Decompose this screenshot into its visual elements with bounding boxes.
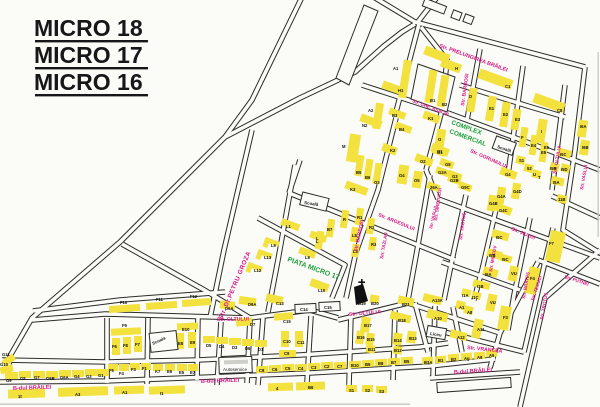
- svg-text:D1: D1: [258, 347, 264, 352]
- svg-text:A12: A12: [457, 335, 465, 340]
- svg-text:B3A: B3A: [424, 360, 432, 365]
- svg-text:F9: F9: [122, 323, 128, 328]
- svg-text:C13: C13: [276, 301, 284, 306]
- svg-text:Ag: Ag: [464, 356, 470, 361]
- svg-text:B3: B3: [392, 113, 398, 118]
- svg-text:B4: B4: [399, 127, 405, 132]
- svg-text:B17: B17: [364, 323, 372, 328]
- svg-text:R1: R1: [357, 215, 363, 220]
- svg-text:K2: K2: [390, 148, 396, 153]
- svg-text:B10: B10: [351, 363, 359, 368]
- svg-text:G9: G9: [6, 378, 12, 383]
- svg-text:C11: C11: [297, 340, 305, 345]
- svg-text:B1: B1: [438, 358, 444, 363]
- svg-text:C14: C14: [300, 307, 308, 312]
- svg-text:VU: VU: [511, 271, 517, 276]
- svg-text:F12: F12: [190, 294, 198, 299]
- svg-text:B12: B12: [394, 348, 402, 353]
- svg-text:A2: A2: [368, 108, 374, 113]
- svg-text:R: R: [343, 217, 346, 222]
- svg-text:B5: B5: [404, 359, 410, 364]
- svg-text:L8: L8: [305, 255, 311, 260]
- svg-text:I5B: I5B: [550, 166, 557, 171]
- svg-text:S1: S1: [519, 158, 525, 163]
- svg-text:L3: L3: [353, 249, 359, 254]
- svg-text:F8: F8: [123, 343, 129, 348]
- svg-text:G8: G8: [20, 376, 26, 381]
- svg-text:E5: E5: [179, 370, 185, 375]
- svg-text:R2: R2: [369, 225, 375, 230]
- svg-text:G9C: G9C: [461, 185, 470, 190]
- svg-text:G10: G10: [0, 362, 9, 367]
- svg-text:Autoservice: Autoservice: [223, 367, 247, 372]
- svg-text:I5D: I5D: [561, 167, 568, 172]
- svg-text:F1: F1: [142, 366, 148, 371]
- svg-text:B-dul BRĂILEI: B-dul BRĂILEI: [13, 384, 52, 392]
- svg-text:11B: 11B: [558, 197, 565, 202]
- svg-text:MICRO 16: MICRO 16: [34, 69, 143, 95]
- svg-text:A3: A3: [75, 392, 81, 397]
- svg-text:F7: F7: [549, 241, 555, 246]
- svg-text:I1B: I1B: [477, 284, 484, 289]
- svg-text:B20: B20: [371, 301, 379, 306]
- svg-text:G6B: G6B: [46, 376, 55, 381]
- svg-text:E4: E4: [531, 143, 537, 148]
- svg-text:B8: B8: [378, 361, 384, 366]
- svg-text:F4: F4: [530, 276, 536, 281]
- svg-text:D4: D4: [219, 344, 225, 349]
- svg-text:E6: E6: [167, 369, 173, 374]
- svg-text:G1: G1: [437, 150, 443, 155]
- svg-text:M: M: [342, 144, 346, 149]
- svg-text:B14: B14: [394, 338, 402, 343]
- svg-text:I5A: I5A: [553, 180, 560, 185]
- svg-text:B18: B18: [398, 318, 406, 323]
- svg-text:D6A: D6A: [225, 306, 233, 311]
- svg-text:S2: S2: [365, 388, 371, 393]
- svg-text:A9: A9: [477, 355, 483, 360]
- svg-text:A1: A1: [459, 305, 465, 310]
- svg-text:L13: L13: [264, 255, 272, 260]
- svg-text:G4B: G4B: [489, 201, 498, 206]
- svg-text:D5: D5: [206, 343, 212, 348]
- svg-text:E5: E5: [544, 145, 550, 150]
- svg-text:C1: C1: [505, 84, 511, 89]
- svg-text:C7: C7: [337, 364, 343, 369]
- svg-text:B9: B9: [365, 362, 371, 367]
- svg-text:B6: B6: [308, 385, 314, 390]
- svg-text:A5: A5: [489, 353, 495, 358]
- svg-text:I6A: I6A: [580, 124, 587, 129]
- svg-text:C3: C3: [311, 365, 317, 370]
- svg-text:E8: E8: [178, 341, 184, 346]
- svg-text:B2: B2: [442, 102, 448, 107]
- svg-text:I5C: I5C: [496, 235, 503, 240]
- svg-text:O2: O2: [420, 159, 426, 164]
- svg-text:Str. OLTULUI: Str. OLTULUI: [217, 316, 250, 323]
- svg-text:I1A: I1A: [462, 293, 469, 298]
- svg-text:G8: G8: [445, 162, 451, 167]
- svg-text:G6A: G6A: [60, 375, 69, 380]
- svg-text:I5C: I5C: [560, 152, 567, 157]
- svg-text:D9A: D9A: [248, 302, 256, 307]
- svg-text:G3A: G3A: [438, 170, 447, 175]
- svg-text:G11: G11: [2, 352, 10, 357]
- svg-text:D6: D6: [245, 346, 251, 351]
- svg-text:F: F: [521, 135, 524, 140]
- svg-text:G7: G7: [34, 375, 40, 380]
- svg-text:G4: G4: [74, 374, 80, 379]
- svg-text:L12: L12: [254, 268, 262, 273]
- svg-text:G1: G1: [98, 373, 104, 378]
- svg-text:F3: F3: [503, 315, 509, 320]
- svg-text:H: H: [455, 66, 458, 71]
- svg-text:R3: R3: [371, 242, 377, 247]
- svg-text:L10: L10: [318, 288, 326, 293]
- svg-text:I5C: I5C: [502, 257, 509, 262]
- svg-text:E9: E9: [190, 340, 196, 345]
- svg-text:F11: F11: [156, 297, 164, 302]
- svg-text:B21: B21: [402, 302, 410, 307]
- svg-text:I5A: I5A: [485, 272, 492, 277]
- svg-text:B13: B13: [409, 336, 417, 341]
- svg-text:G3: G3: [86, 374, 92, 379]
- svg-text:F5: F5: [109, 368, 115, 373]
- svg-text:MICRO 17: MICRO 17: [34, 42, 143, 68]
- svg-text:C9: C9: [284, 351, 290, 356]
- svg-text:C5: C5: [285, 366, 291, 371]
- svg-text:B19: B19: [358, 301, 366, 306]
- svg-text:G4D: G4D: [513, 189, 522, 194]
- svg-text:L: L: [316, 236, 319, 241]
- svg-text:O4: O4: [399, 173, 405, 178]
- svg-text:B15: B15: [367, 337, 375, 342]
- svg-text:MICRO 18: MICRO 18: [34, 15, 143, 41]
- svg-text:K3: K3: [350, 187, 356, 192]
- svg-text:S1: S1: [349, 388, 355, 393]
- svg-text:F7: F7: [135, 342, 141, 347]
- svg-text:D: D: [469, 94, 472, 99]
- svg-text:B7: B7: [327, 227, 333, 232]
- svg-text:D7: D7: [250, 322, 256, 327]
- svg-text:52: 52: [527, 166, 532, 171]
- svg-text:B16: B16: [357, 335, 365, 340]
- svg-text:A1: A1: [122, 390, 128, 395]
- svg-text:F6: F6: [112, 344, 118, 349]
- svg-text:A11: A11: [477, 327, 485, 332]
- svg-text:B6: B6: [365, 175, 371, 180]
- svg-text:B-dul BRĂILEI: B-dul BRĂILEI: [201, 377, 240, 385]
- svg-text:E7: E7: [190, 370, 196, 375]
- svg-text:1t: 1t: [18, 394, 22, 399]
- svg-text:H1: H1: [398, 88, 404, 93]
- svg-text:K1: K1: [428, 116, 434, 121]
- svg-text:26A: 26A: [430, 185, 438, 190]
- svg-text:C6: C6: [272, 367, 278, 372]
- svg-text:O3: O3: [374, 180, 380, 185]
- svg-text:C4: C4: [298, 366, 304, 371]
- svg-text:B11: B11: [368, 347, 376, 352]
- svg-text:A1: A1: [393, 66, 399, 71]
- svg-text:I1C: I1C: [472, 295, 479, 300]
- svg-text:A8: A8: [467, 310, 473, 315]
- svg-text:B5: B5: [356, 170, 362, 175]
- svg-text:C2: C2: [324, 364, 330, 369]
- svg-text:N2: N2: [362, 123, 368, 128]
- svg-text:L9: L9: [271, 243, 277, 248]
- svg-text:C19: C19: [283, 319, 291, 324]
- svg-text:F3: F3: [131, 367, 137, 372]
- svg-text:D3: D3: [232, 345, 238, 350]
- svg-text:F4: F4: [119, 371, 125, 376]
- svg-text:B7: B7: [391, 360, 397, 365]
- svg-text:E10: E10: [182, 327, 190, 332]
- svg-text:B1: B1: [430, 98, 436, 103]
- svg-text:I: I: [541, 129, 542, 134]
- svg-text:E2: E2: [503, 112, 509, 117]
- svg-text:E3: E3: [515, 117, 521, 122]
- svg-text:B2: B2: [451, 357, 457, 362]
- svg-text:O5: O5: [414, 178, 420, 183]
- svg-text:C8: C8: [557, 108, 563, 113]
- svg-text:S3: S3: [379, 389, 385, 394]
- svg-text:C15: C15: [324, 305, 332, 310]
- svg-text:F10: F10: [120, 300, 128, 305]
- svg-text:L1: L1: [286, 224, 292, 229]
- svg-text:U: U: [533, 172, 536, 177]
- svg-text:K7: K7: [155, 369, 161, 374]
- svg-text:A10: A10: [434, 316, 442, 321]
- svg-text:E5: E5: [541, 150, 547, 155]
- svg-text:C10: C10: [283, 339, 291, 344]
- svg-text:C8: C8: [259, 368, 265, 373]
- svg-text:G4A: G4A: [497, 194, 506, 199]
- svg-text:G4: G4: [505, 172, 511, 177]
- svg-text:A13A: A13A: [432, 298, 443, 303]
- svg-text:G2B: G2B: [450, 178, 459, 183]
- svg-text:E1: E1: [489, 106, 495, 111]
- svg-text:I5B: I5B: [489, 253, 496, 258]
- svg-text:L8: L8: [352, 233, 358, 238]
- svg-text:I6B: I6B: [582, 145, 589, 150]
- svg-text:T: T: [538, 175, 541, 180]
- svg-text:VU: VU: [490, 300, 496, 305]
- svg-text:G4C: G4C: [499, 208, 508, 213]
